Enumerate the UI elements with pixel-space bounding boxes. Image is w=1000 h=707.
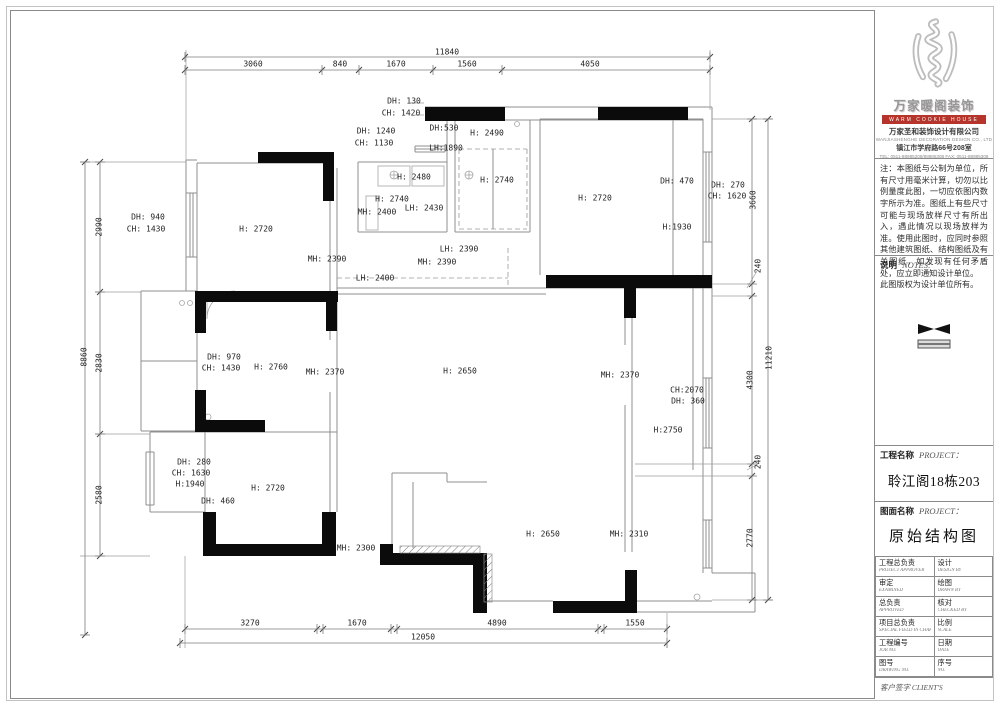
cell-label-en: DRAWN BY	[938, 588, 990, 593]
drawing-name-section: 图面名称 PROJECT： 原始结构图	[875, 501, 993, 556]
thin-walls	[141, 107, 755, 612]
cell-label-en: EXAMINED	[879, 588, 931, 593]
cell-label: 设计	[938, 558, 990, 568]
cell-label-en: CHECKED BY	[938, 608, 990, 613]
notes-label-en: NOTES:	[902, 260, 931, 270]
legend-symbols	[880, 323, 988, 349]
legend-wall-symbol	[917, 339, 951, 349]
floor-plan-sheet: 1184030608401670156040503270167048901550…	[0, 0, 1000, 707]
legend-bowtie-symbol	[917, 323, 951, 335]
company-name-en: WANJIASHENGHE DECORATION DESIGN CO., LTD	[875, 137, 993, 142]
cell-label-en: PROJECT APPROVER	[879, 568, 931, 573]
structural-walls	[195, 107, 712, 613]
cell-label: 比例	[938, 618, 990, 628]
company-logo-glyph	[902, 16, 966, 88]
cell-label: 项目总负责	[879, 618, 931, 628]
cell-label: 序号	[938, 658, 990, 668]
project-label-en: PROJECT：	[919, 449, 963, 461]
note-section: 注：本图纸与公制为单位，所有尺寸用毫米计算，切勿以比例量度此图，一切应依图内数字…	[875, 158, 993, 255]
window-symbols	[146, 146, 712, 568]
dashed-lines	[337, 149, 527, 288]
cell-label: 工程总负责	[879, 558, 931, 568]
table-cell: 序号NO.	[934, 657, 993, 677]
project-label: 工程名称	[880, 449, 914, 461]
cell-label-en: DESIGN BY	[938, 568, 990, 573]
cell-label-en: APPROVED	[879, 608, 931, 613]
cell-label-en: DRAWING NO.	[879, 668, 931, 673]
cell-label: 审定	[879, 578, 931, 588]
logo-title: 万家暖阁装饰	[875, 95, 993, 114]
cell-label: 工程编号	[879, 638, 931, 648]
approval-table: 工程总负责PROJECT APPROVER 设计DESIGN BY 审定EXAM…	[875, 556, 993, 677]
table-cell: 核对CHECKED BY	[934, 597, 993, 617]
floor-plan-drawing	[0, 0, 1000, 707]
cell-label: 绘图	[938, 578, 990, 588]
table-row: 审定EXAMINED 绘图DRAWN BY	[876, 577, 993, 597]
table-row: 工程总负责PROJECT APPROVER 设计DESIGN BY	[876, 557, 993, 577]
table-cell: 绘图DRAWN BY	[934, 577, 993, 597]
cell-label: 日期	[938, 638, 990, 648]
cell-label-en: SPECIAL FIELD IN CHARGE	[879, 628, 931, 633]
client-signature: 客户签字 CLIENT'S	[875, 677, 993, 699]
table-cell: 项目总负责SPECIAL FIELD IN CHARGE	[876, 617, 935, 637]
table-cell: 日期DATE	[934, 637, 993, 657]
table-cell: 总负责APPROVED	[876, 597, 935, 617]
title-block: 万家暖阁装饰 WARM COOKIE HOUSE 万家圣和装饰设计有限公司 WA…	[874, 10, 993, 699]
company-address: 镇江市学府路66号208室	[875, 143, 993, 153]
table-cell: 工程总负责PROJECT APPROVER	[876, 557, 935, 577]
table-row: 项目总负责SPECIAL FIELD IN CHARGE 比例SCALE	[876, 617, 993, 637]
cell-label: 总负责	[879, 598, 931, 608]
drawing-label-en: PROJECT：	[919, 505, 963, 517]
table-row: 总负责APPROVED 核对CHECKED BY	[876, 597, 993, 617]
logo-band: WARM COOKIE HOUSE	[882, 115, 986, 124]
cell-label-en: DATE	[938, 648, 990, 653]
table-cell: 图号DRAWING NO.	[876, 657, 935, 677]
table-row: 工程编号JOB NO. 日期DATE	[876, 637, 993, 657]
company-name: 万家圣和装饰设计有限公司	[875, 126, 993, 137]
table-cell: 设计DESIGN BY	[934, 557, 993, 577]
logo-section: 万家暖阁装饰 WARM COOKIE HOUSE 万家圣和装饰设计有限公司 WA…	[875, 10, 993, 158]
notes-section: 说明 NOTES:	[875, 255, 993, 445]
drawing-label: 图面名称	[880, 505, 914, 517]
notes-label: 说明	[880, 259, 897, 271]
project-name-section: 工程名称 PROJECT： 聆江阁18栋203	[875, 445, 993, 501]
cell-label: 核对	[938, 598, 990, 608]
project-name: 聆江阁18栋203	[880, 470, 988, 490]
table-cell: 比例SCALE	[934, 617, 993, 637]
cell-label-en: JOB NO.	[879, 648, 931, 653]
cell-label-en: SCALE	[938, 628, 990, 633]
table-row: 图号DRAWING NO. 序号NO.	[876, 657, 993, 677]
table-cell: 工程编号JOB NO.	[876, 637, 935, 657]
cell-label: 图号	[879, 658, 931, 668]
drawing-name: 原始结构图	[880, 525, 988, 546]
cell-label-en: NO.	[938, 668, 990, 673]
table-cell: 审定EXAMINED	[876, 577, 935, 597]
